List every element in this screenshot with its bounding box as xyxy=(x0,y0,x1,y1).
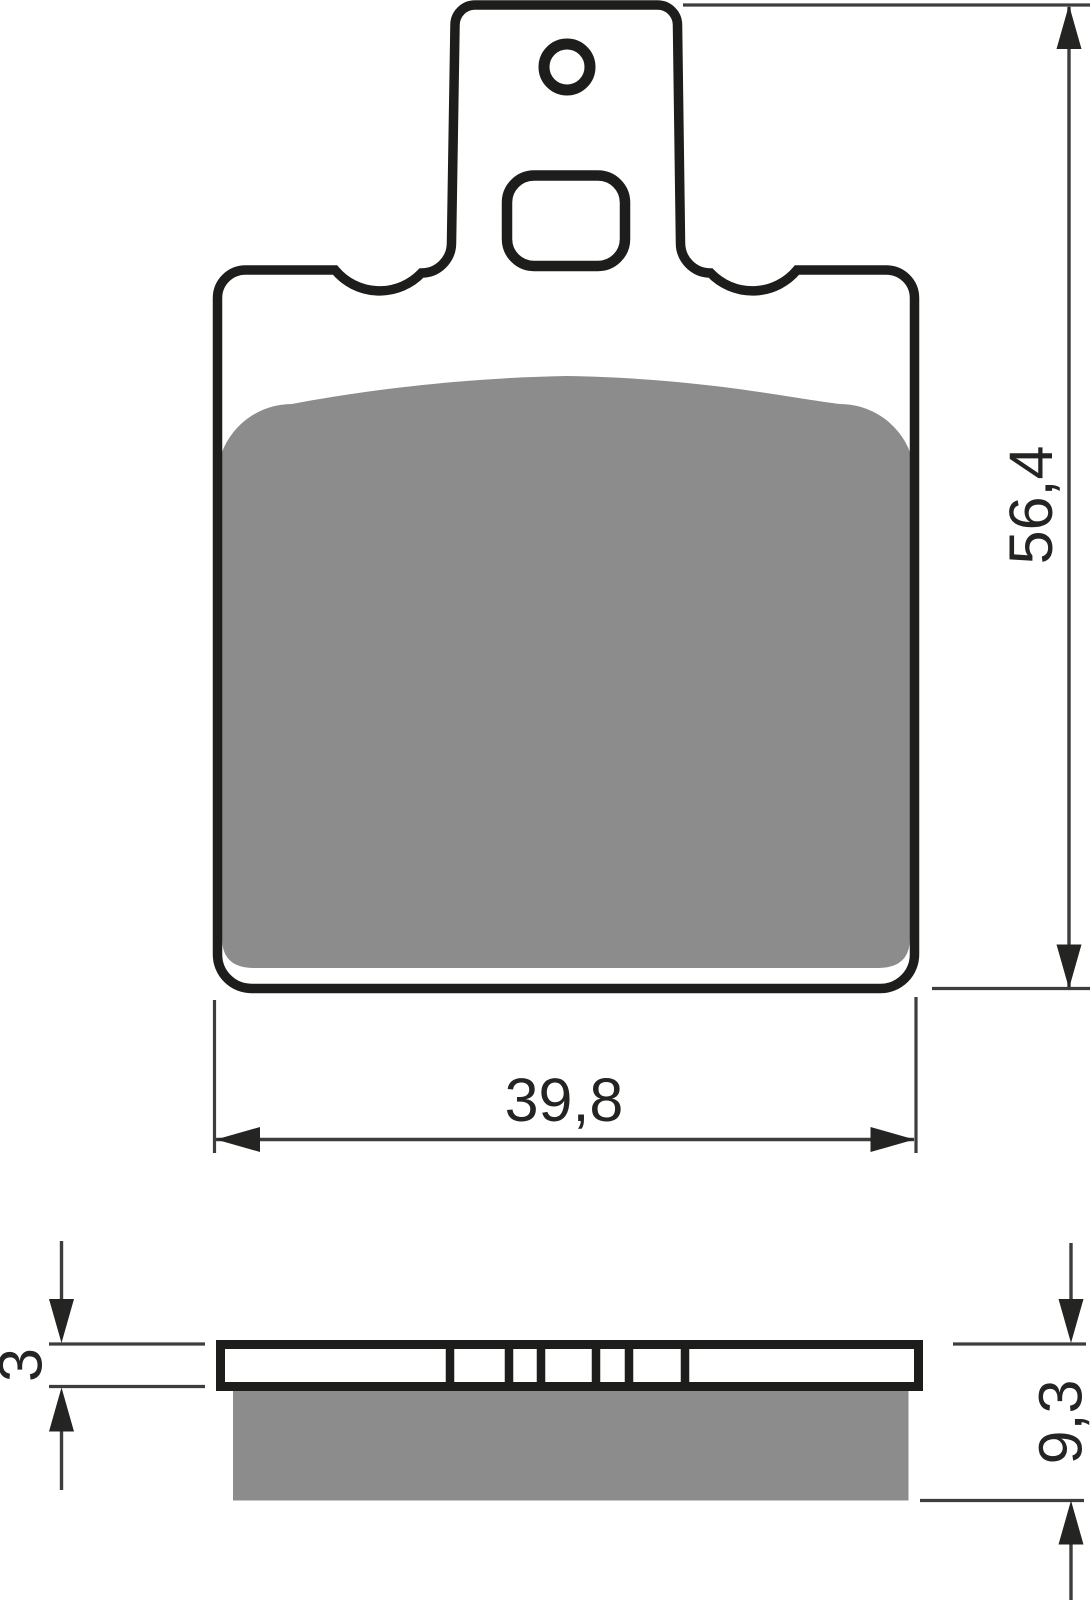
svg-text:9,3: 9,3 xyxy=(1027,1380,1092,1465)
svg-text:39,8: 39,8 xyxy=(505,1066,624,1134)
svg-text:56,4: 56,4 xyxy=(997,446,1065,565)
svg-text:3: 3 xyxy=(0,1348,55,1382)
